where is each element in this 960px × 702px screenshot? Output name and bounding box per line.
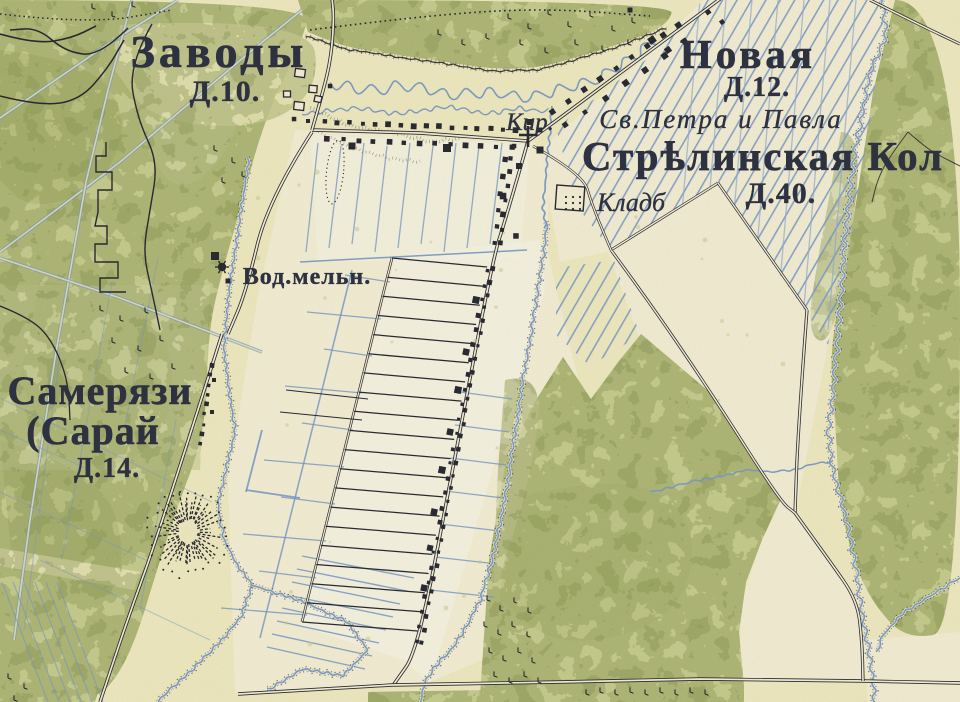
svg-text:Кладб: Кладб [596, 188, 666, 217]
svg-text:Вод.мельн.: Вод.мельн. [243, 264, 371, 290]
svg-text:Стрѣлинская Кол: Стрѣлинская Кол [582, 133, 944, 179]
svg-text:Д.14.: Д.14. [74, 453, 140, 484]
svg-text:Кир.: Кир. [505, 109, 554, 136]
svg-text:Д.12.: Д.12. [724, 72, 790, 103]
svg-text:Новая: Новая [680, 31, 816, 77]
svg-text:(Сарай: (Сарай [26, 408, 160, 453]
svg-text:Самерязи: Самерязи [8, 368, 193, 413]
svg-text:Д.10.: Д.10. [190, 75, 261, 108]
svg-text:Св.Петра и Павла: Св.Петра и Павла [599, 104, 842, 134]
svg-text:Д.40.: Д.40. [746, 177, 817, 210]
svg-text:Заводы: Заводы [131, 26, 308, 77]
